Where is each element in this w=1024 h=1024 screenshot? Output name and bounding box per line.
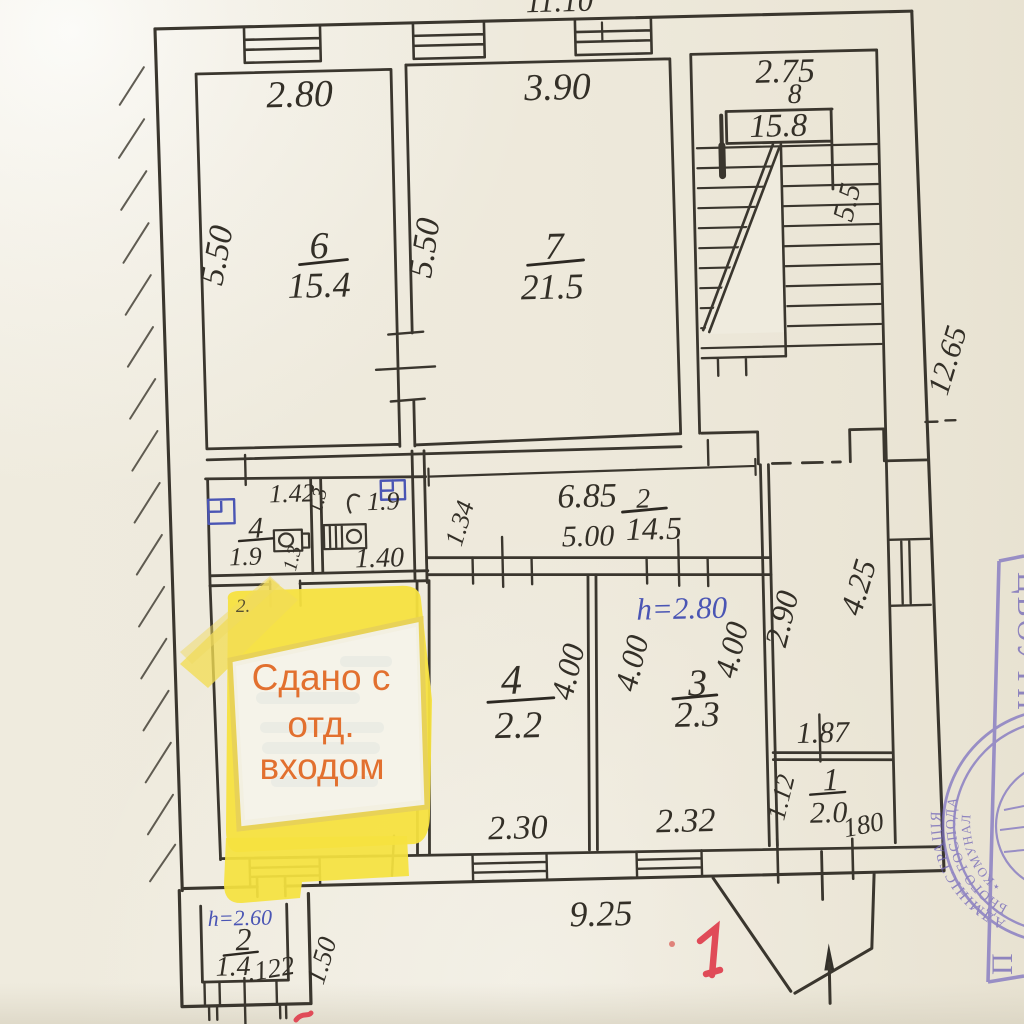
svg-text:1.40: 1.40	[355, 542, 405, 574]
svg-text:14.5: 14.5	[625, 510, 682, 547]
svg-text:6.85: 6.85	[557, 477, 617, 515]
svg-text:4: 4	[500, 657, 522, 703]
svg-text:15.8: 15.8	[749, 108, 808, 145]
svg-text:1.9: 1.9	[367, 486, 400, 516]
svg-text:входом: входом	[259, 746, 384, 787]
svg-text:2.30: 2.30	[488, 809, 548, 847]
svg-text:2.32: 2.32	[656, 802, 716, 840]
svg-text:9.25: 9.25	[569, 893, 633, 934]
svg-text:2.80: 2.80	[266, 73, 333, 117]
svg-text:2.3: 2.3	[674, 694, 720, 735]
svg-text:2.2: 2.2	[494, 704, 542, 747]
svg-text:ЦВОУТН: ЦВОУТН	[1011, 572, 1024, 713]
svg-text:2.: 2.	[236, 596, 250, 617]
svg-text:2.75: 2.75	[755, 52, 815, 90]
svg-text:3.90: 3.90	[523, 66, 591, 110]
svg-text:1.87: 1.87	[796, 716, 851, 750]
svg-text:h=2.80: h=2.80	[636, 590, 728, 627]
svg-text:отд.: отд.	[287, 704, 354, 745]
svg-text:1.4: 1.4	[215, 951, 251, 983]
svg-text:11.10: 11.10	[525, 0, 594, 19]
svg-text:21.5: 21.5	[520, 266, 584, 307]
svg-text:Сдано с: Сдано с	[252, 657, 391, 698]
svg-text:5.00: 5.00	[561, 519, 614, 553]
svg-text:П: П	[986, 953, 1019, 975]
svg-text:15.4: 15.4	[287, 264, 351, 305]
svg-text:1.9: 1.9	[229, 542, 262, 572]
svg-text:8: 8	[787, 79, 802, 110]
